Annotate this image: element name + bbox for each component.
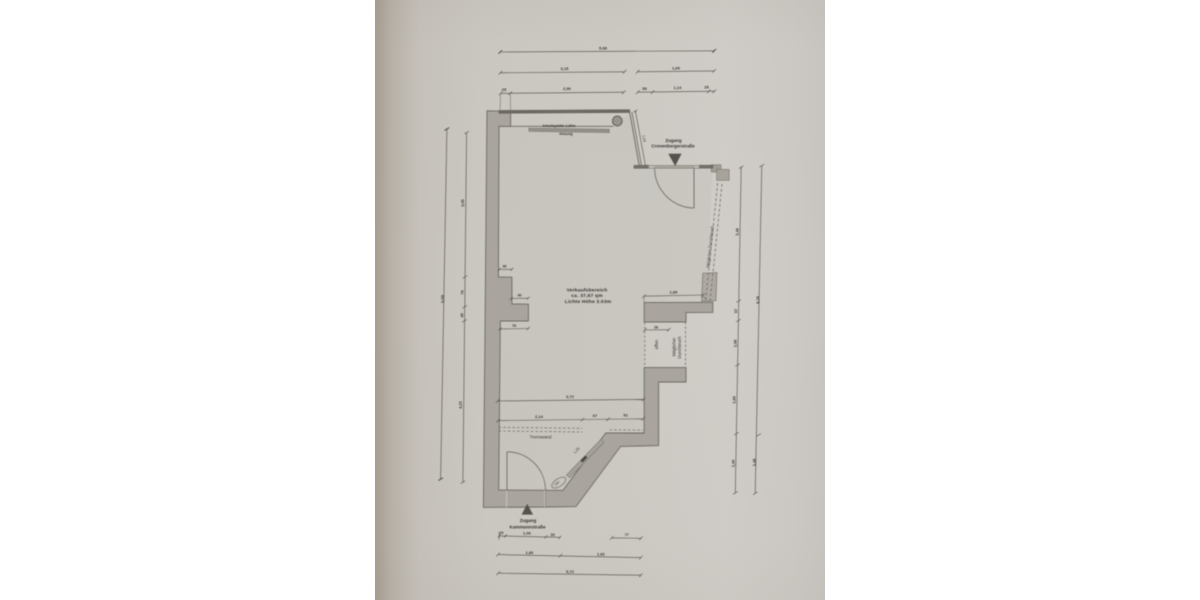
svg-text:1,40: 1,40 (731, 460, 736, 468)
svg-text:6,78: 6,78 (755, 295, 760, 303)
svg-text:3,48: 3,48 (735, 227, 740, 235)
svg-text:40: 40 (517, 294, 521, 298)
svg-text:Cronenbergerstraße: Cronenbergerstraße (651, 144, 695, 149)
svg-text:5,72: 5,72 (566, 569, 575, 574)
svg-text:Möglicher: Möglicher (672, 337, 677, 356)
svg-text:1,14: 1,14 (674, 85, 683, 90)
svg-text:57: 57 (733, 309, 738, 313)
svg-text:2,90: 2,90 (563, 86, 572, 91)
svg-text:25: 25 (502, 87, 507, 92)
svg-text:Durchbruch: Durchbruch (677, 336, 682, 359)
svg-text:5,59: 5,59 (440, 294, 445, 303)
svg-text:Verkaufsbereich: Verkaufsbereich (567, 287, 608, 293)
svg-text:Kammannstraße: Kammannstraße (510, 524, 546, 529)
svg-text:1,48: 1,48 (752, 458, 757, 466)
svg-text:28: 28 (654, 325, 658, 329)
svg-text:Arbeitsplatte 2,80m: Arbeitsplatte 2,80m (542, 124, 575, 128)
svg-text:30: 30 (502, 265, 506, 269)
svg-text:40: 40 (459, 313, 464, 317)
svg-text:1,92: 1,92 (597, 552, 606, 557)
svg-text:1,06: 1,06 (523, 531, 532, 536)
svg-text:77: 77 (625, 533, 629, 537)
svg-text:4,23: 4,23 (458, 400, 463, 408)
svg-text:3,72: 3,72 (566, 394, 575, 399)
svg-text:offen: offen (654, 339, 659, 349)
svg-text:Trennwand: Trennwand (530, 434, 552, 439)
svg-text:1,80: 1,80 (526, 550, 535, 555)
svg-text:1,08: 1,08 (733, 339, 738, 347)
svg-text:Zugang: Zugang (665, 138, 681, 143)
svg-text:Lichte Höhe 3.03m: Lichte Höhe 3.03m (565, 299, 612, 305)
svg-text:5,38: 5,38 (599, 45, 608, 50)
svg-text:91: 91 (623, 413, 628, 418)
svg-text:3,15: 3,15 (561, 66, 570, 71)
svg-text:Heizung: Heizung (559, 132, 572, 136)
svg-text:67: 67 (593, 413, 598, 418)
svg-text:39: 39 (551, 533, 555, 537)
svg-text:2,14: 2,14 (535, 414, 544, 419)
svg-text:ca. 37,67 qm: ca. 37,67 qm (571, 293, 603, 299)
svg-text:55: 55 (642, 86, 647, 91)
svg-text:1,65: 1,65 (672, 65, 681, 70)
svg-text:3,05: 3,05 (460, 198, 465, 206)
svg-text:Zugang: Zugang (520, 518, 537, 523)
svg-text:75: 75 (512, 324, 516, 328)
svg-text:25: 25 (704, 84, 709, 89)
svg-text:1,69: 1,69 (731, 395, 736, 403)
svg-text:1,89: 1,89 (670, 290, 679, 295)
svg-text:19: 19 (499, 531, 503, 535)
